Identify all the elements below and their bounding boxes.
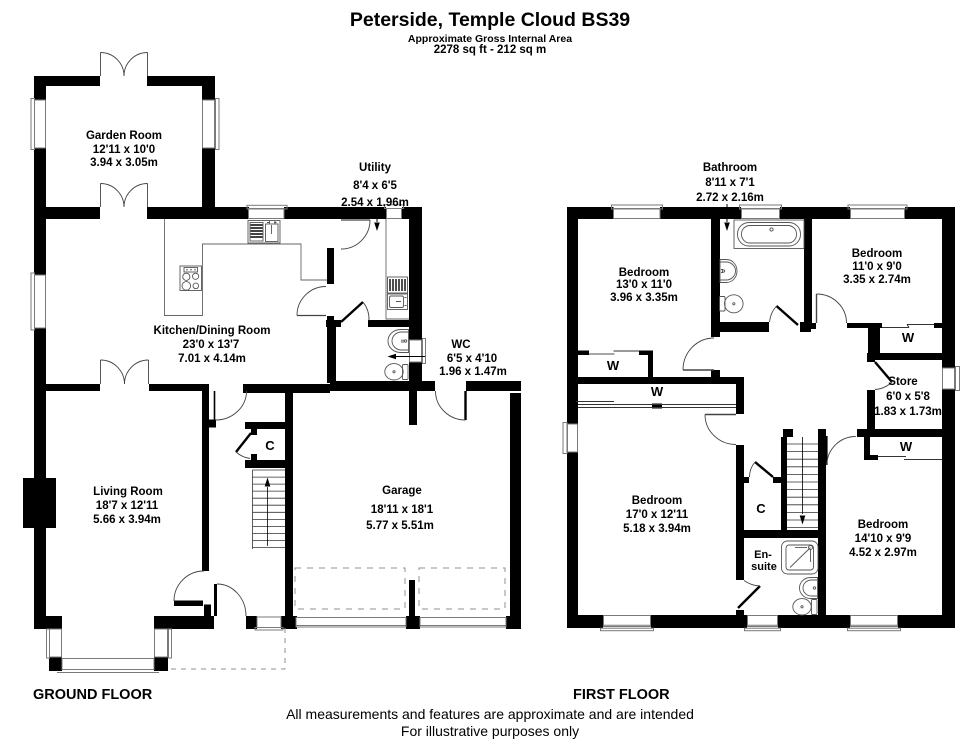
svg-text:Garden Room: Garden Room bbox=[86, 130, 162, 142]
svg-text:FIRST FLOOR: FIRST FLOOR bbox=[573, 687, 670, 703]
svg-text:Living Room: Living Room bbox=[93, 486, 163, 498]
svg-text:3.35 x 2.74m: 3.35 x 2.74m bbox=[843, 274, 911, 286]
svg-text:GROUND FLOOR: GROUND FLOOR bbox=[33, 687, 153, 703]
svg-text:W: W bbox=[900, 439, 913, 454]
svg-text:11'0 x 9'0: 11'0 x 9'0 bbox=[852, 261, 902, 273]
svg-text:4.52 x 2.97m: 4.52 x 2.97m bbox=[849, 547, 917, 559]
svg-text:8'11 x 7'1: 8'11 x 7'1 bbox=[705, 177, 755, 189]
svg-text:For illustrative purposes only: For illustrative purposes only bbox=[401, 723, 579, 739]
svg-text:17'0 x 12'11: 17'0 x 12'11 bbox=[626, 509, 689, 521]
svg-text:5.18 x 3.94m: 5.18 x 3.94m bbox=[623, 523, 691, 535]
svg-text:Store: Store bbox=[888, 376, 917, 388]
svg-text:Utility: Utility bbox=[359, 162, 392, 174]
svg-text:Kitchen/Dining Room: Kitchen/Dining Room bbox=[154, 325, 271, 337]
svg-text:23'0 x 13'7: 23'0 x 13'7 bbox=[183, 339, 240, 351]
svg-text:Bedroom: Bedroom bbox=[619, 267, 669, 279]
svg-text:6'0 x 5'8: 6'0 x 5'8 bbox=[886, 391, 930, 403]
svg-text:All measurements and features: All measurements and features are approx… bbox=[286, 706, 694, 722]
svg-text:18'7 x 12'11: 18'7 x 12'11 bbox=[96, 500, 159, 512]
svg-text:Garage: Garage bbox=[382, 485, 422, 497]
svg-text:W: W bbox=[902, 330, 915, 345]
svg-text:6'5 x 4'10: 6'5 x 4'10 bbox=[447, 353, 497, 365]
svg-text:Bedroom: Bedroom bbox=[852, 248, 902, 260]
svg-text:18'11 x 18'1: 18'11 x 18'1 bbox=[371, 504, 434, 516]
svg-text:3.96 x 3.35m: 3.96 x 3.35m bbox=[610, 292, 678, 304]
svg-text:Bathroom: Bathroom bbox=[703, 162, 757, 174]
svg-text:C: C bbox=[265, 438, 275, 453]
svg-text:3.94 x 3.05m: 3.94 x 3.05m bbox=[90, 157, 158, 169]
svg-text:13'0 x 11'0: 13'0 x 11'0 bbox=[616, 279, 672, 291]
svg-text:suite: suite bbox=[751, 561, 777, 573]
svg-text:12'11 x 10'0: 12'11 x 10'0 bbox=[93, 144, 155, 156]
svg-text:Bedroom: Bedroom bbox=[858, 519, 908, 531]
svg-text:2.54 x 1.96m: 2.54 x 1.96m bbox=[341, 197, 409, 209]
svg-text:W: W bbox=[607, 358, 620, 373]
svg-text:7.01 x 4.14m: 7.01 x 4.14m bbox=[178, 353, 246, 365]
svg-text:2.72 x 2.16m: 2.72 x 2.16m bbox=[696, 192, 764, 204]
svg-text:C: C bbox=[756, 501, 766, 516]
svg-text:1.83 x 1.73m: 1.83 x 1.73m bbox=[874, 406, 942, 418]
svg-text:5.66 x 3.94m: 5.66 x 3.94m bbox=[93, 514, 161, 526]
svg-text:8'4 x 6'5: 8'4 x 6'5 bbox=[353, 180, 397, 192]
svg-text:14'10 x 9'9: 14'10 x 9'9 bbox=[855, 533, 912, 545]
svg-text:W: W bbox=[651, 384, 664, 399]
svg-text:WC: WC bbox=[451, 339, 470, 351]
svg-text:2278 sq ft - 212 sq m: 2278 sq ft - 212 sq m bbox=[434, 44, 547, 56]
svg-text:1.96 x 1.47m: 1.96 x 1.47m bbox=[439, 366, 507, 378]
svg-text:Bedroom: Bedroom bbox=[632, 495, 682, 507]
svg-text:Peterside, Temple Cloud BS39: Peterside, Temple Cloud BS39 bbox=[350, 9, 630, 31]
svg-text:En-: En- bbox=[754, 549, 772, 561]
svg-text:5.77 x 5.51m: 5.77 x 5.51m bbox=[366, 520, 434, 532]
